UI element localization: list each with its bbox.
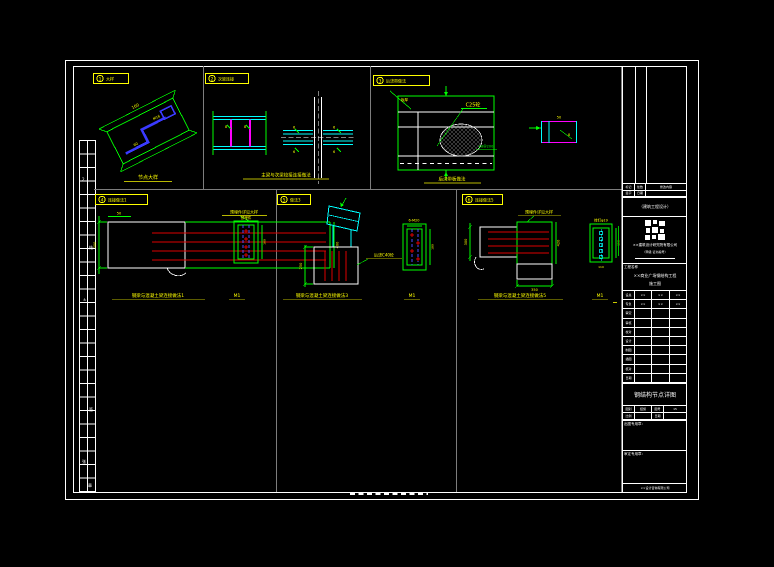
dim-label: 50 xyxy=(117,212,121,216)
dim-label: 300 xyxy=(464,239,468,246)
callout-label: 次梁连接 xyxy=(218,76,234,82)
detail-5-scale: M1 xyxy=(409,293,416,299)
sig-value xyxy=(670,374,687,383)
detail-5-title: 钢梁与混凝土梁连接做法3 xyxy=(296,292,348,299)
detail-1-drawing: 160 60 M16 节点大样 xyxy=(96,84,197,181)
dim-label: 50 xyxy=(557,116,561,120)
detail-4-drawing: 300 50 400 预埋件详见大样 160 预埋件 钢梁与混凝土梁连接做法1 xyxy=(93,209,340,300)
stiffener-label: 8 xyxy=(244,125,246,129)
sig-label: 设计 xyxy=(623,337,635,346)
detail-3-callout: 3 后浇带做法 xyxy=(374,76,430,86)
weld-label: 6 xyxy=(333,150,335,154)
project-cell: 工程名称 ××商业广场钢结构工程 施工图 xyxy=(623,263,687,290)
sig-value xyxy=(652,319,670,328)
note-label: 预埋件详见大样 xyxy=(230,209,258,215)
sig-label: 审核 xyxy=(623,319,635,328)
signature-table: 设总 ×× ×× ×× 专负 ×× ×× ×× 审定 审核 校对 设计 制图 描… xyxy=(623,290,687,383)
info-cell: 图号 xyxy=(652,406,664,413)
sig-label: 描图 xyxy=(623,355,635,364)
callout-number: 5 xyxy=(283,198,286,204)
sig-label: 审定 xyxy=(623,309,635,318)
weld-label: 6 xyxy=(293,126,295,130)
project-label: 工程名称 xyxy=(624,265,638,270)
org-note: （建筑工程设计） xyxy=(639,204,671,210)
project-name-line1: ××商业广场钢结构工程 xyxy=(623,273,687,279)
callout-label: 后浇带做法 xyxy=(386,78,406,84)
title-block-column-line xyxy=(635,66,636,183)
sig-label: 核对 xyxy=(623,365,635,374)
weld-label: 6 xyxy=(333,126,335,130)
project-name-line2: 施工图 xyxy=(623,281,687,287)
callout-number: 2 xyxy=(211,77,214,83)
detail-5-drawing: 250 后浇C40砼 180 6-M20 钢梁与混凝土梁连接做法3 M1 xyxy=(283,198,435,300)
sig-value xyxy=(635,355,652,364)
note-label: 预埋件 xyxy=(241,215,252,220)
sig-value xyxy=(652,374,670,383)
title-block-column-line xyxy=(646,66,647,183)
sig-value xyxy=(635,328,652,337)
fold-marks xyxy=(350,493,428,495)
detail-6-scale: M1 xyxy=(597,293,604,299)
drawing-title-cell: 钢结构节点详图 xyxy=(623,383,687,405)
footer-cell: ××设计咨询有限公司 xyxy=(623,483,687,492)
info-cell: 比例 xyxy=(623,413,635,420)
sig-value xyxy=(635,309,652,318)
sig-value: ×× xyxy=(652,300,670,309)
sig-value xyxy=(652,355,670,364)
detail-2-title: 主梁与次梁铰接连接做法 xyxy=(261,172,311,179)
callout-label: 做法3 xyxy=(290,197,301,203)
sig-value xyxy=(670,309,687,318)
sig-value xyxy=(635,337,652,346)
sig-value: ×× xyxy=(670,300,687,309)
detail-5-callout: 5 做法3 xyxy=(278,195,311,205)
detail-6-drawing: 300 350 420 预埋件详见大样 150 栓钉φ19 110 钢梁与混凝土… xyxy=(464,209,621,300)
stiffener-label: 8 xyxy=(225,125,227,129)
org-note-cell: （建筑工程设计） xyxy=(623,197,687,216)
detail-4-title: 钢梁与混凝土梁连接做法1 xyxy=(132,292,184,299)
sig-value: ×× xyxy=(670,291,687,300)
callout-number: 6 xyxy=(468,198,471,204)
detail-4-callout: 4 连接做法1 xyxy=(96,195,148,205)
info-table: 图别 结施 图号 15 比例 日期 xyxy=(623,405,687,420)
callout-number: 3 xyxy=(379,79,382,85)
callout-label: 连接做法5 xyxy=(475,197,494,203)
detail-3-title: 后浇带板做法 xyxy=(439,176,466,183)
sig-value: ×× xyxy=(635,300,652,309)
weld-label: 6 xyxy=(293,150,295,154)
dim-label: 350 xyxy=(531,288,538,292)
seal-cell-2: 审定专用章： xyxy=(623,450,687,483)
callout-number: 4 xyxy=(101,198,104,204)
company-cell: ××建筑设计研究院有限公司 （甲级·证书编号） xyxy=(623,216,687,263)
sig-label: 设总 xyxy=(623,291,635,300)
sig-value xyxy=(635,365,652,374)
info-cell: 图别 xyxy=(623,406,635,413)
info-cell: 15 xyxy=(664,406,687,413)
revision-table: 标记 处数 修改内容 签字 日期 xyxy=(623,183,687,197)
seal-label: 出图专用章： xyxy=(624,422,645,427)
sig-value xyxy=(670,319,687,328)
info-cell xyxy=(635,413,652,420)
concrete-grade-label: C25砼 xyxy=(466,102,481,109)
sig-value xyxy=(670,355,687,364)
sig-value xyxy=(652,346,670,355)
green-accent-mark xyxy=(618,226,619,256)
sig-label: 校对 xyxy=(623,328,635,337)
company-cert: （甲级·证书编号） xyxy=(623,250,687,254)
sig-label: 日期 xyxy=(623,374,635,383)
sig-label: 制图 xyxy=(623,346,635,355)
note-label: 6-M20 xyxy=(409,219,420,223)
sig-value xyxy=(652,337,670,346)
sig-value xyxy=(635,346,652,355)
footer-text: ××设计咨询有限公司 xyxy=(640,486,669,490)
company-underline xyxy=(635,258,675,259)
dim-label: 300 xyxy=(93,242,97,249)
note-label: 栓钉φ19 xyxy=(594,218,608,223)
drawing-area: 1 大样 2 次梁连接 3 后浇带做法 4 连接做法1 5 做法3 6 连接做法… xyxy=(73,66,686,492)
yellow-accent-mark xyxy=(613,302,617,303)
dim-label: 420 xyxy=(557,240,561,247)
detail-3-drawing: 板厚 C25砼 φ8@200 后浇带板做法 50 8 xyxy=(390,86,577,183)
callout-label: 连接做法1 xyxy=(108,197,127,203)
detail-6-title: 钢梁与混凝土梁连接做法5 xyxy=(494,292,546,299)
info-cell xyxy=(664,413,687,420)
info-cell: 结施 xyxy=(635,406,652,413)
company-name: ××建筑设计研究院有限公司 xyxy=(623,243,687,248)
detail-1-callout: 1 大样 xyxy=(94,74,129,84)
sig-value xyxy=(652,328,670,337)
cad-sheet: 2 结 ± 签 张 章 1 大样 2 次 xyxy=(0,0,774,567)
detail-6-callout: 6 连接做法5 xyxy=(463,195,503,205)
callout-number: 1 xyxy=(99,77,102,83)
sig-value xyxy=(670,337,687,346)
sig-value xyxy=(635,319,652,328)
title-block: 标记 处数 修改内容 签字 日期 （建筑工程设计） ××建筑设计研究院有限公司 … xyxy=(622,66,687,492)
sig-value xyxy=(635,374,652,383)
detail-1-title: 节点大样 xyxy=(138,174,158,181)
dim-label: 110 xyxy=(598,265,604,269)
dim-label: 160 xyxy=(263,239,267,245)
info-cell: 日期 xyxy=(652,413,664,420)
callout-label: 大样 xyxy=(106,76,114,82)
sig-value: ×× xyxy=(635,291,652,300)
sig-value xyxy=(670,365,687,374)
sig-label: 专负 xyxy=(623,300,635,309)
detail-2-callout: 2 次梁连接 xyxy=(206,74,249,84)
sig-value xyxy=(670,346,687,355)
dim-label: 180 xyxy=(431,244,435,250)
sig-value xyxy=(652,365,670,374)
sig-value xyxy=(670,328,687,337)
dim-label: 250 xyxy=(299,263,303,270)
seal-label: 审定专用章： xyxy=(624,452,645,457)
rebar-label: φ8@200 xyxy=(479,145,494,149)
note-label: 预埋件详见大样 xyxy=(525,209,553,215)
company-logo xyxy=(644,219,666,241)
sig-value xyxy=(652,309,670,318)
note-label: 后浇C40砼 xyxy=(374,252,394,258)
sig-value: ×× xyxy=(652,291,670,300)
seal-cell-1: 出图专用章： xyxy=(623,420,687,450)
detail-4-scale: M1 xyxy=(234,293,241,299)
drawing-title: 钢结构节点详图 xyxy=(634,390,676,399)
detail-2-drawing: 8 8 6 6 6 6 主梁与次梁铰接连接做法 xyxy=(213,91,355,184)
note-label: 板厚 xyxy=(401,97,409,102)
